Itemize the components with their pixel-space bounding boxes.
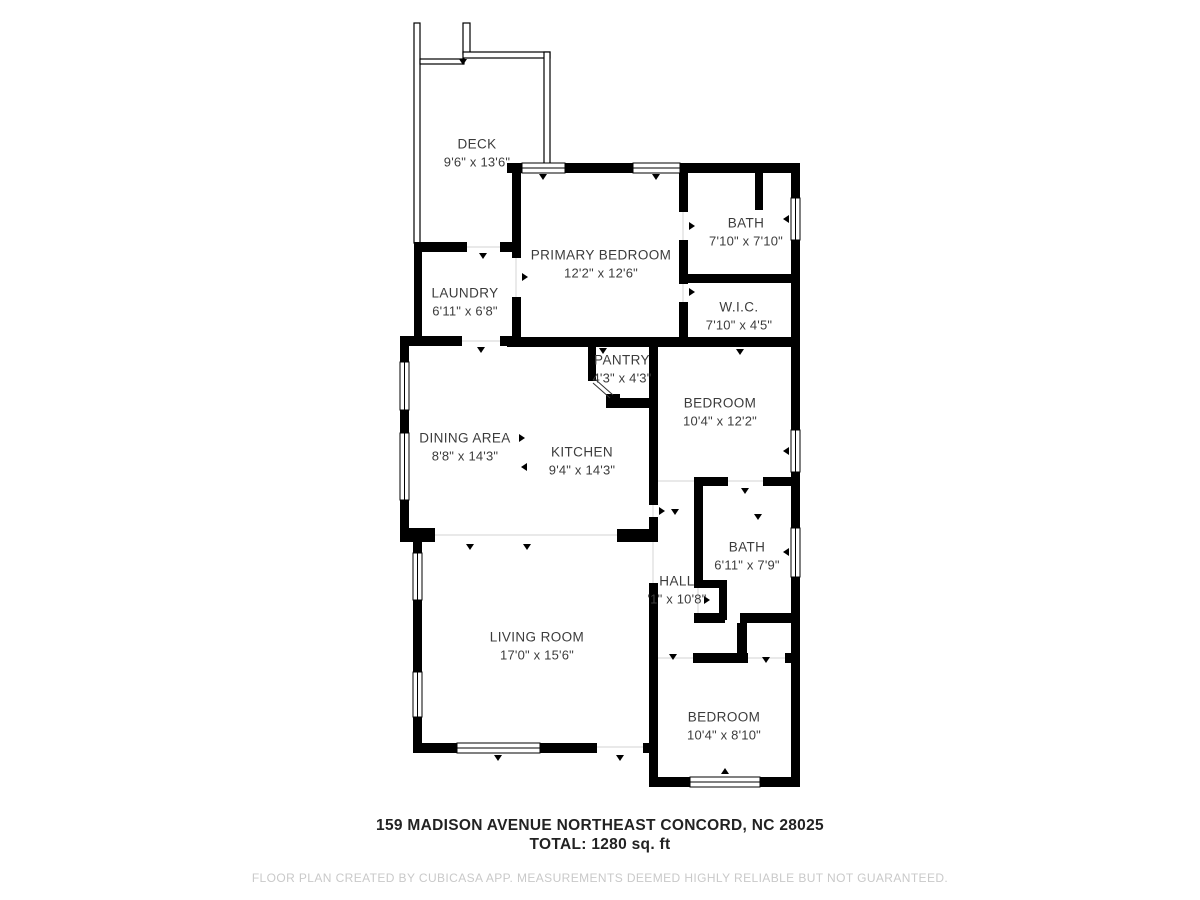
room-label-hall: HALL '1" x 10'8" [647, 572, 706, 609]
room-label-bedroom-bottom: BEDROOM 10'4" x 8'10" [687, 708, 761, 745]
room-label-kitchen: KITCHEN 9'4" x 14'3" [549, 443, 615, 480]
room-label-laundry: LAUNDRY 6'11" x 6'8" [431, 284, 498, 321]
deck-railing [414, 23, 550, 243]
floor-plan-page: DECK 9'6" x 13'6" PRIMARY BEDROOM 12'2" … [0, 0, 1200, 900]
footer: 159 MADISON AVENUE NORTHEAST CONCORD, NC… [0, 816, 1200, 885]
room-label-bath-top: BATH 7'10" x 7'10" [709, 214, 783, 251]
room-label-deck: DECK 9'6" x 13'6" [444, 135, 510, 172]
property-address: 159 MADISON AVENUE NORTHEAST CONCORD, NC… [0, 816, 1200, 835]
room-label-bath-lower: BATH 6'11" x 7'9" [714, 538, 780, 575]
room-label-dining-area: DINING AREA 8'8" x 14'3" [419, 429, 510, 466]
disclaimer-text: FLOOR PLAN CREATED BY CUBICASA APP. MEAS… [0, 871, 1200, 885]
room-label-bedroom-middle: BEDROOM 10'4" x 12'2" [683, 394, 757, 431]
room-label-primary-bedroom: PRIMARY BEDROOM 12'2" x 12'6" [531, 246, 672, 283]
room-label-wic: W.I.C. 7'10" x 4'5" [706, 298, 772, 335]
room-label-living-room: LIVING ROOM 17'0" x 15'6" [490, 628, 584, 665]
total-area: TOTAL: 1280 sq. ft [0, 835, 1200, 854]
room-label-pantry: PANTRY 4'3" x 4'3" [592, 351, 651, 388]
